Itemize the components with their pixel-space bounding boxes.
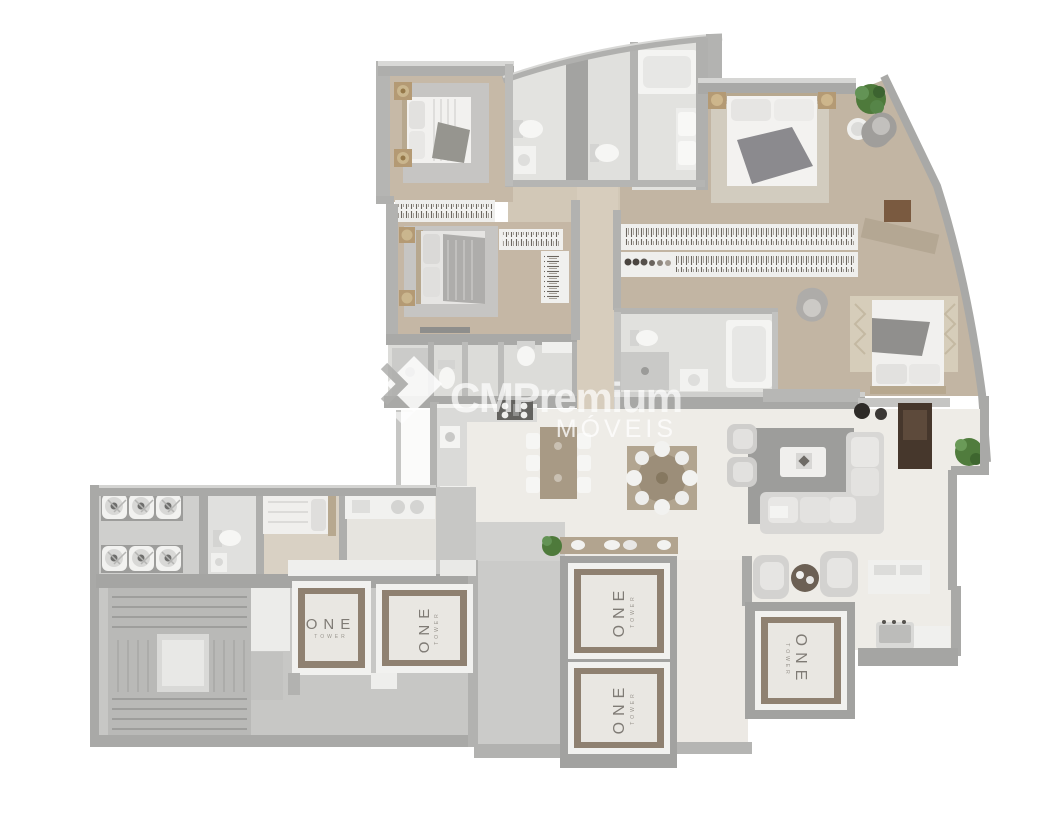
svg-text:TOWER: TOWER xyxy=(630,691,636,725)
svg-text:TOWER: TOWER xyxy=(630,594,636,628)
svg-text:CMPremium: CMPremium xyxy=(450,374,682,421)
svg-text:ONE: ONE xyxy=(792,634,809,687)
svg-text:MÓVEIS: MÓVEIS xyxy=(556,414,677,443)
svg-text:ONE: ONE xyxy=(416,603,433,654)
svg-text:ONE: ONE xyxy=(611,682,628,735)
svg-text:TOWER: TOWER xyxy=(784,643,790,677)
svg-text:ONE: ONE xyxy=(611,585,628,638)
svg-text:TOWER: TOWER xyxy=(434,611,440,645)
svg-text:TOWER: TOWER xyxy=(314,634,348,640)
svg-text:ONE: ONE xyxy=(306,616,357,633)
